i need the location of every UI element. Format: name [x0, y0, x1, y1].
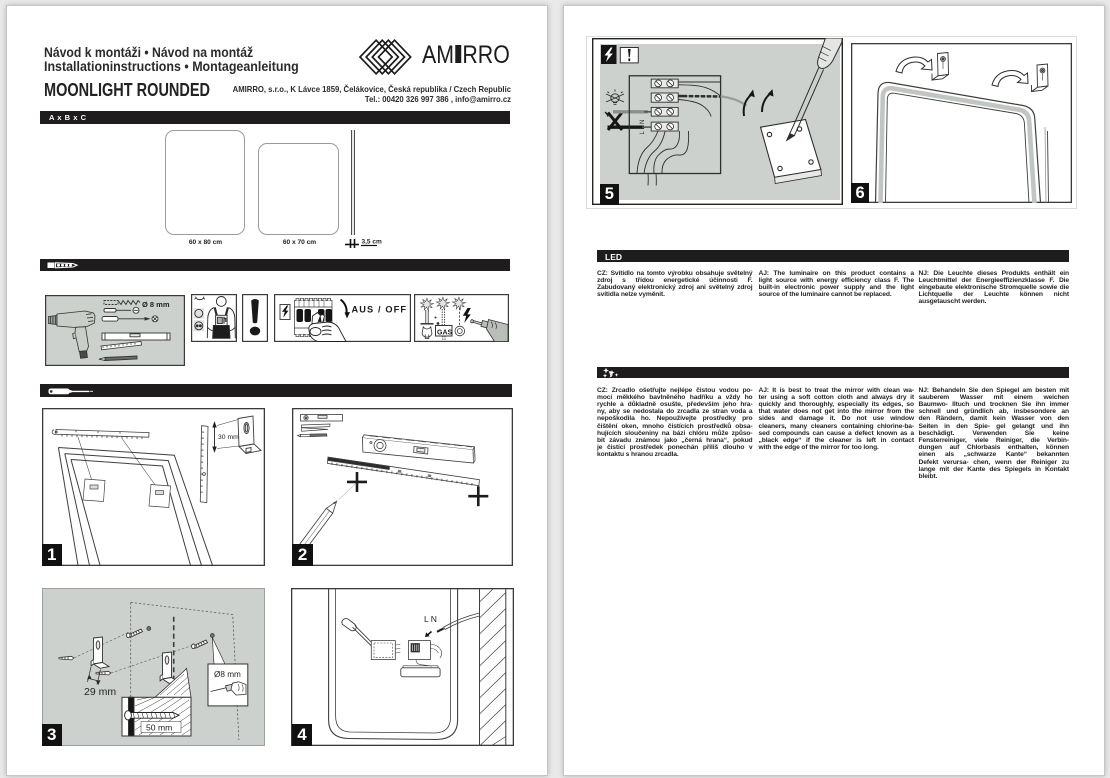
svg-text:Ø 8 mm: Ø 8 mm: [142, 300, 170, 309]
svg-text:GAS: GAS: [437, 329, 453, 336]
svg-text:50 mm: 50 mm: [146, 722, 172, 732]
svg-text:Ø8 mm: Ø8 mm: [214, 670, 241, 679]
svg-text:L N: L N: [424, 614, 437, 624]
svg-text:29 mm: 29 mm: [84, 686, 116, 698]
svg-text:30 mm: 30 mm: [218, 434, 239, 441]
svg-text:AUS / OFF: AUS / OFF: [352, 304, 407, 314]
svg-text:N: N: [640, 119, 646, 123]
svg-text:3,5 cm: 3,5 cm: [362, 239, 382, 246]
